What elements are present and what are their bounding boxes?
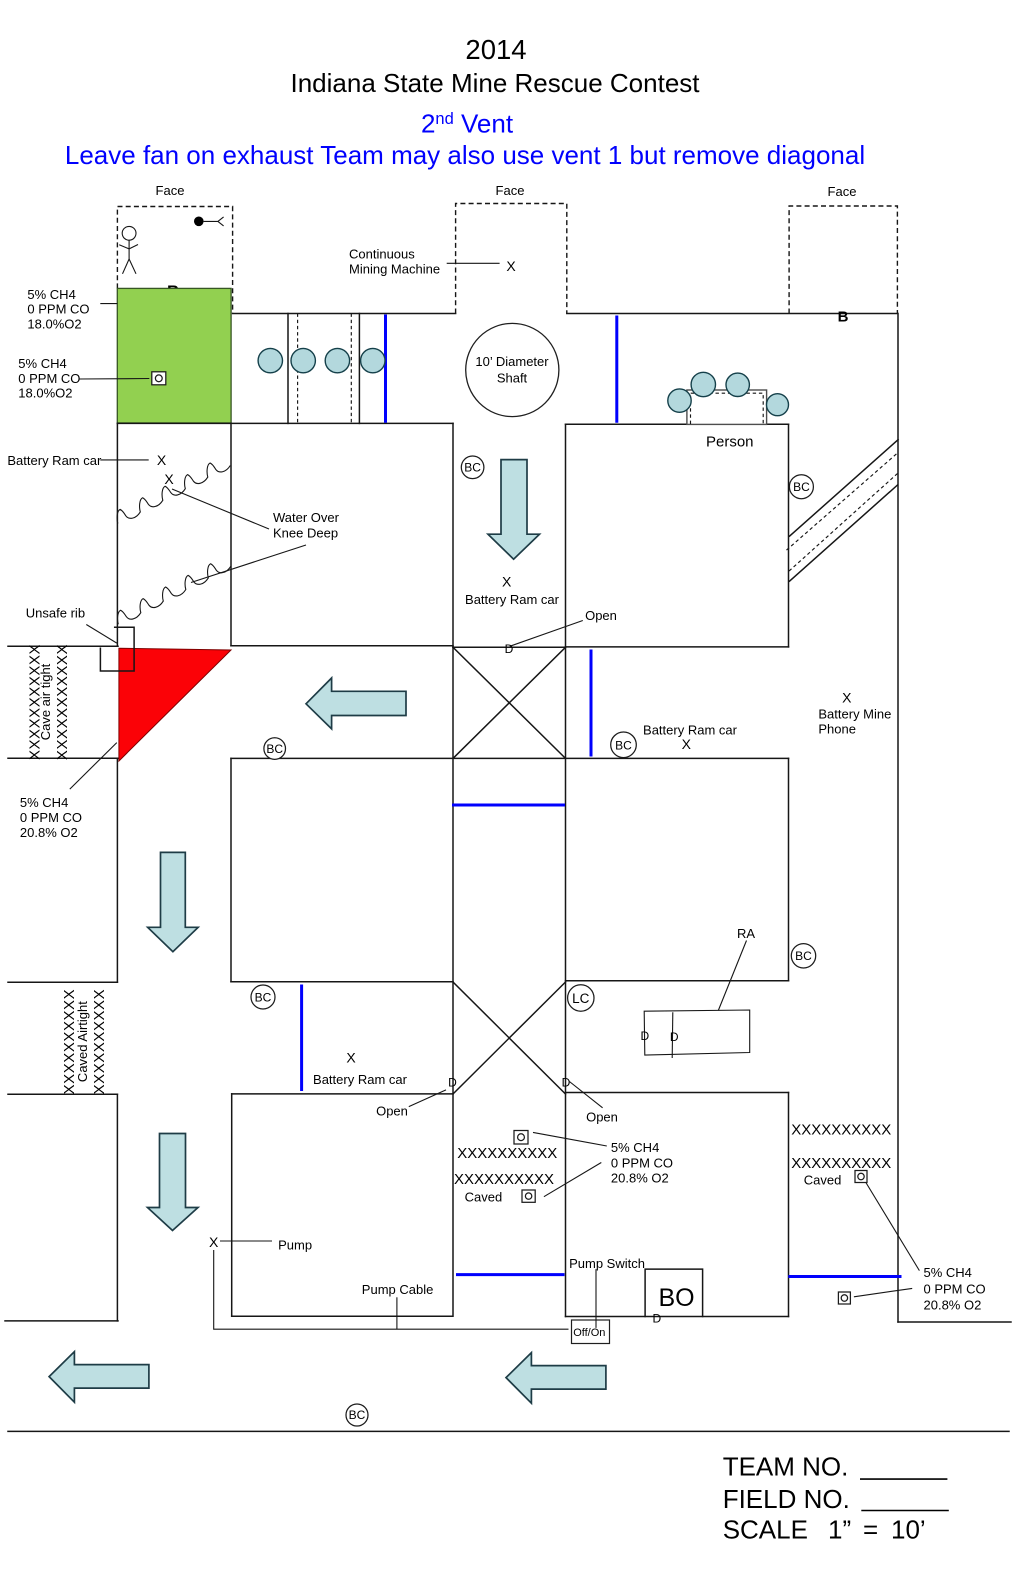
svg-text:18.0%O2: 18.0%O2 [27, 317, 81, 332]
svg-text:Face: Face [828, 184, 857, 199]
svg-text:Face: Face [156, 183, 185, 198]
svg-text:5% CH4: 5% CH4 [27, 287, 75, 302]
svg-text:D: D [562, 1075, 571, 1089]
svg-text:D: D [653, 1311, 662, 1325]
svg-text:XXXXXXXXXXX: XXXXXXXXXXX [54, 644, 71, 760]
svg-text:Battery Mine: Battery Mine [818, 707, 891, 722]
svg-text:1”: 1” [828, 1514, 851, 1544]
svg-text:Battery Ram car: Battery Ram car [465, 592, 560, 607]
svg-text:BC: BC [464, 461, 481, 475]
svg-text:5% CH4: 5% CH4 [20, 795, 68, 810]
svg-text:Person: Person [706, 434, 754, 451]
svg-text:X: X [164, 471, 174, 487]
svg-text:D: D [505, 642, 514, 656]
svg-text:D: D [670, 1030, 679, 1044]
svg-text:BC: BC [793, 480, 810, 494]
svg-text:B: B [838, 309, 849, 326]
svg-text:FIELD NO.: FIELD NO. [723, 1484, 850, 1514]
svg-text:5% CH4: 5% CH4 [611, 1140, 659, 1155]
svg-text:RA: RA [737, 926, 755, 941]
svg-text:0 PPM CO: 0 PPM CO [924, 1282, 986, 1297]
svg-text:Water Over: Water Over [273, 510, 340, 525]
svg-text:0 PPM CO: 0 PPM CO [18, 371, 80, 386]
svg-text:Open: Open [376, 1103, 408, 1118]
svg-text:=: = [863, 1514, 878, 1544]
svg-text:Continuous: Continuous [349, 247, 415, 262]
svg-text:XXXXXXXXXX: XXXXXXXXXX [454, 1171, 554, 1188]
svg-text:5% CH4: 5% CH4 [924, 1265, 972, 1280]
svg-text:Battery Ram car: Battery Ram car [7, 453, 102, 468]
svg-text:2014: 2014 [465, 34, 526, 65]
svg-text:X: X [502, 574, 512, 590]
svg-text:Caved: Caved [465, 1190, 503, 1205]
svg-text:20.8% O2: 20.8% O2 [20, 825, 78, 840]
svg-text:X: X [209, 1234, 219, 1250]
svg-text:X: X [682, 736, 692, 752]
svg-text:X: X [346, 1050, 356, 1066]
svg-text:XXXXXXXXXX: XXXXXXXXXX [457, 1145, 557, 1162]
svg-text:18.0%O2: 18.0%O2 [18, 386, 72, 401]
svg-text:SCALE: SCALE [723, 1514, 808, 1544]
svg-text:BC: BC [349, 1408, 366, 1422]
svg-text:10’: 10’ [891, 1514, 926, 1544]
svg-text:Cave air tight: Cave air tight [38, 663, 53, 740]
svg-text:10’ Diameter: 10’ Diameter [475, 354, 549, 369]
svg-text:Face: Face [496, 183, 525, 198]
svg-text:0 PPM CO: 0 PPM CO [20, 810, 82, 825]
svg-text:BC: BC [266, 742, 283, 756]
svg-text:BC: BC [795, 949, 812, 963]
svg-text:Battery Ram car: Battery Ram car [313, 1072, 408, 1087]
svg-text:Mining Machine: Mining Machine [349, 262, 440, 277]
svg-text:Phone: Phone [818, 722, 856, 737]
svg-text:Unsafe rib: Unsafe rib [26, 606, 85, 621]
svg-text:BC: BC [615, 738, 632, 752]
svg-text:5% CH4: 5% CH4 [18, 356, 66, 371]
svg-text:X: X [506, 258, 516, 274]
svg-text:Caved Airtight: Caved Airtight [75, 1001, 90, 1082]
svg-text:Pump Switch: Pump Switch [569, 1256, 645, 1271]
svg-text:0 PPM CO: 0 PPM CO [611, 1156, 673, 1171]
svg-text:20.8% O2: 20.8% O2 [924, 1298, 982, 1313]
svg-text:Knee Deep: Knee Deep [273, 526, 338, 541]
svg-text:Open: Open [585, 608, 617, 623]
svg-text:XXXXXXXXXX: XXXXXXXXXX [791, 1122, 891, 1139]
svg-text:Pump Cable: Pump Cable [362, 1282, 434, 1297]
svg-text:BO: BO [659, 1284, 695, 1312]
svg-text:LC: LC [572, 991, 590, 1006]
svg-text:XXXXXXXXXX: XXXXXXXXXX [91, 989, 108, 1095]
svg-text:X: X [157, 452, 167, 468]
svg-text:XXXXXXXXXX: XXXXXXXXXX [791, 1155, 891, 1172]
svg-text:Open: Open [586, 1110, 618, 1125]
svg-text:2nd Vent: 2nd Vent [421, 109, 514, 139]
svg-text:Pump: Pump [278, 1238, 312, 1253]
svg-text:D: D [641, 1029, 650, 1043]
svg-text:0 PPM CO: 0 PPM CO [27, 302, 89, 317]
svg-text:BC: BC [255, 990, 272, 1004]
svg-text:D: D [448, 1075, 457, 1089]
svg-text:TEAM NO.: TEAM NO. [723, 1452, 849, 1482]
svg-text:Shaft: Shaft [497, 371, 528, 386]
svg-text:X: X [842, 690, 852, 706]
svg-text:Indiana State Mine Rescue Cont: Indiana State Mine Rescue Contest [290, 68, 700, 98]
svg-text:Off/On: Off/On [573, 1327, 605, 1339]
svg-text:20.8% O2: 20.8% O2 [611, 1171, 669, 1186]
svg-text:Caved: Caved [804, 1173, 842, 1188]
svg-text:Leave fan on exhaust Team may: Leave fan on exhaust Team may also use v… [65, 140, 865, 170]
